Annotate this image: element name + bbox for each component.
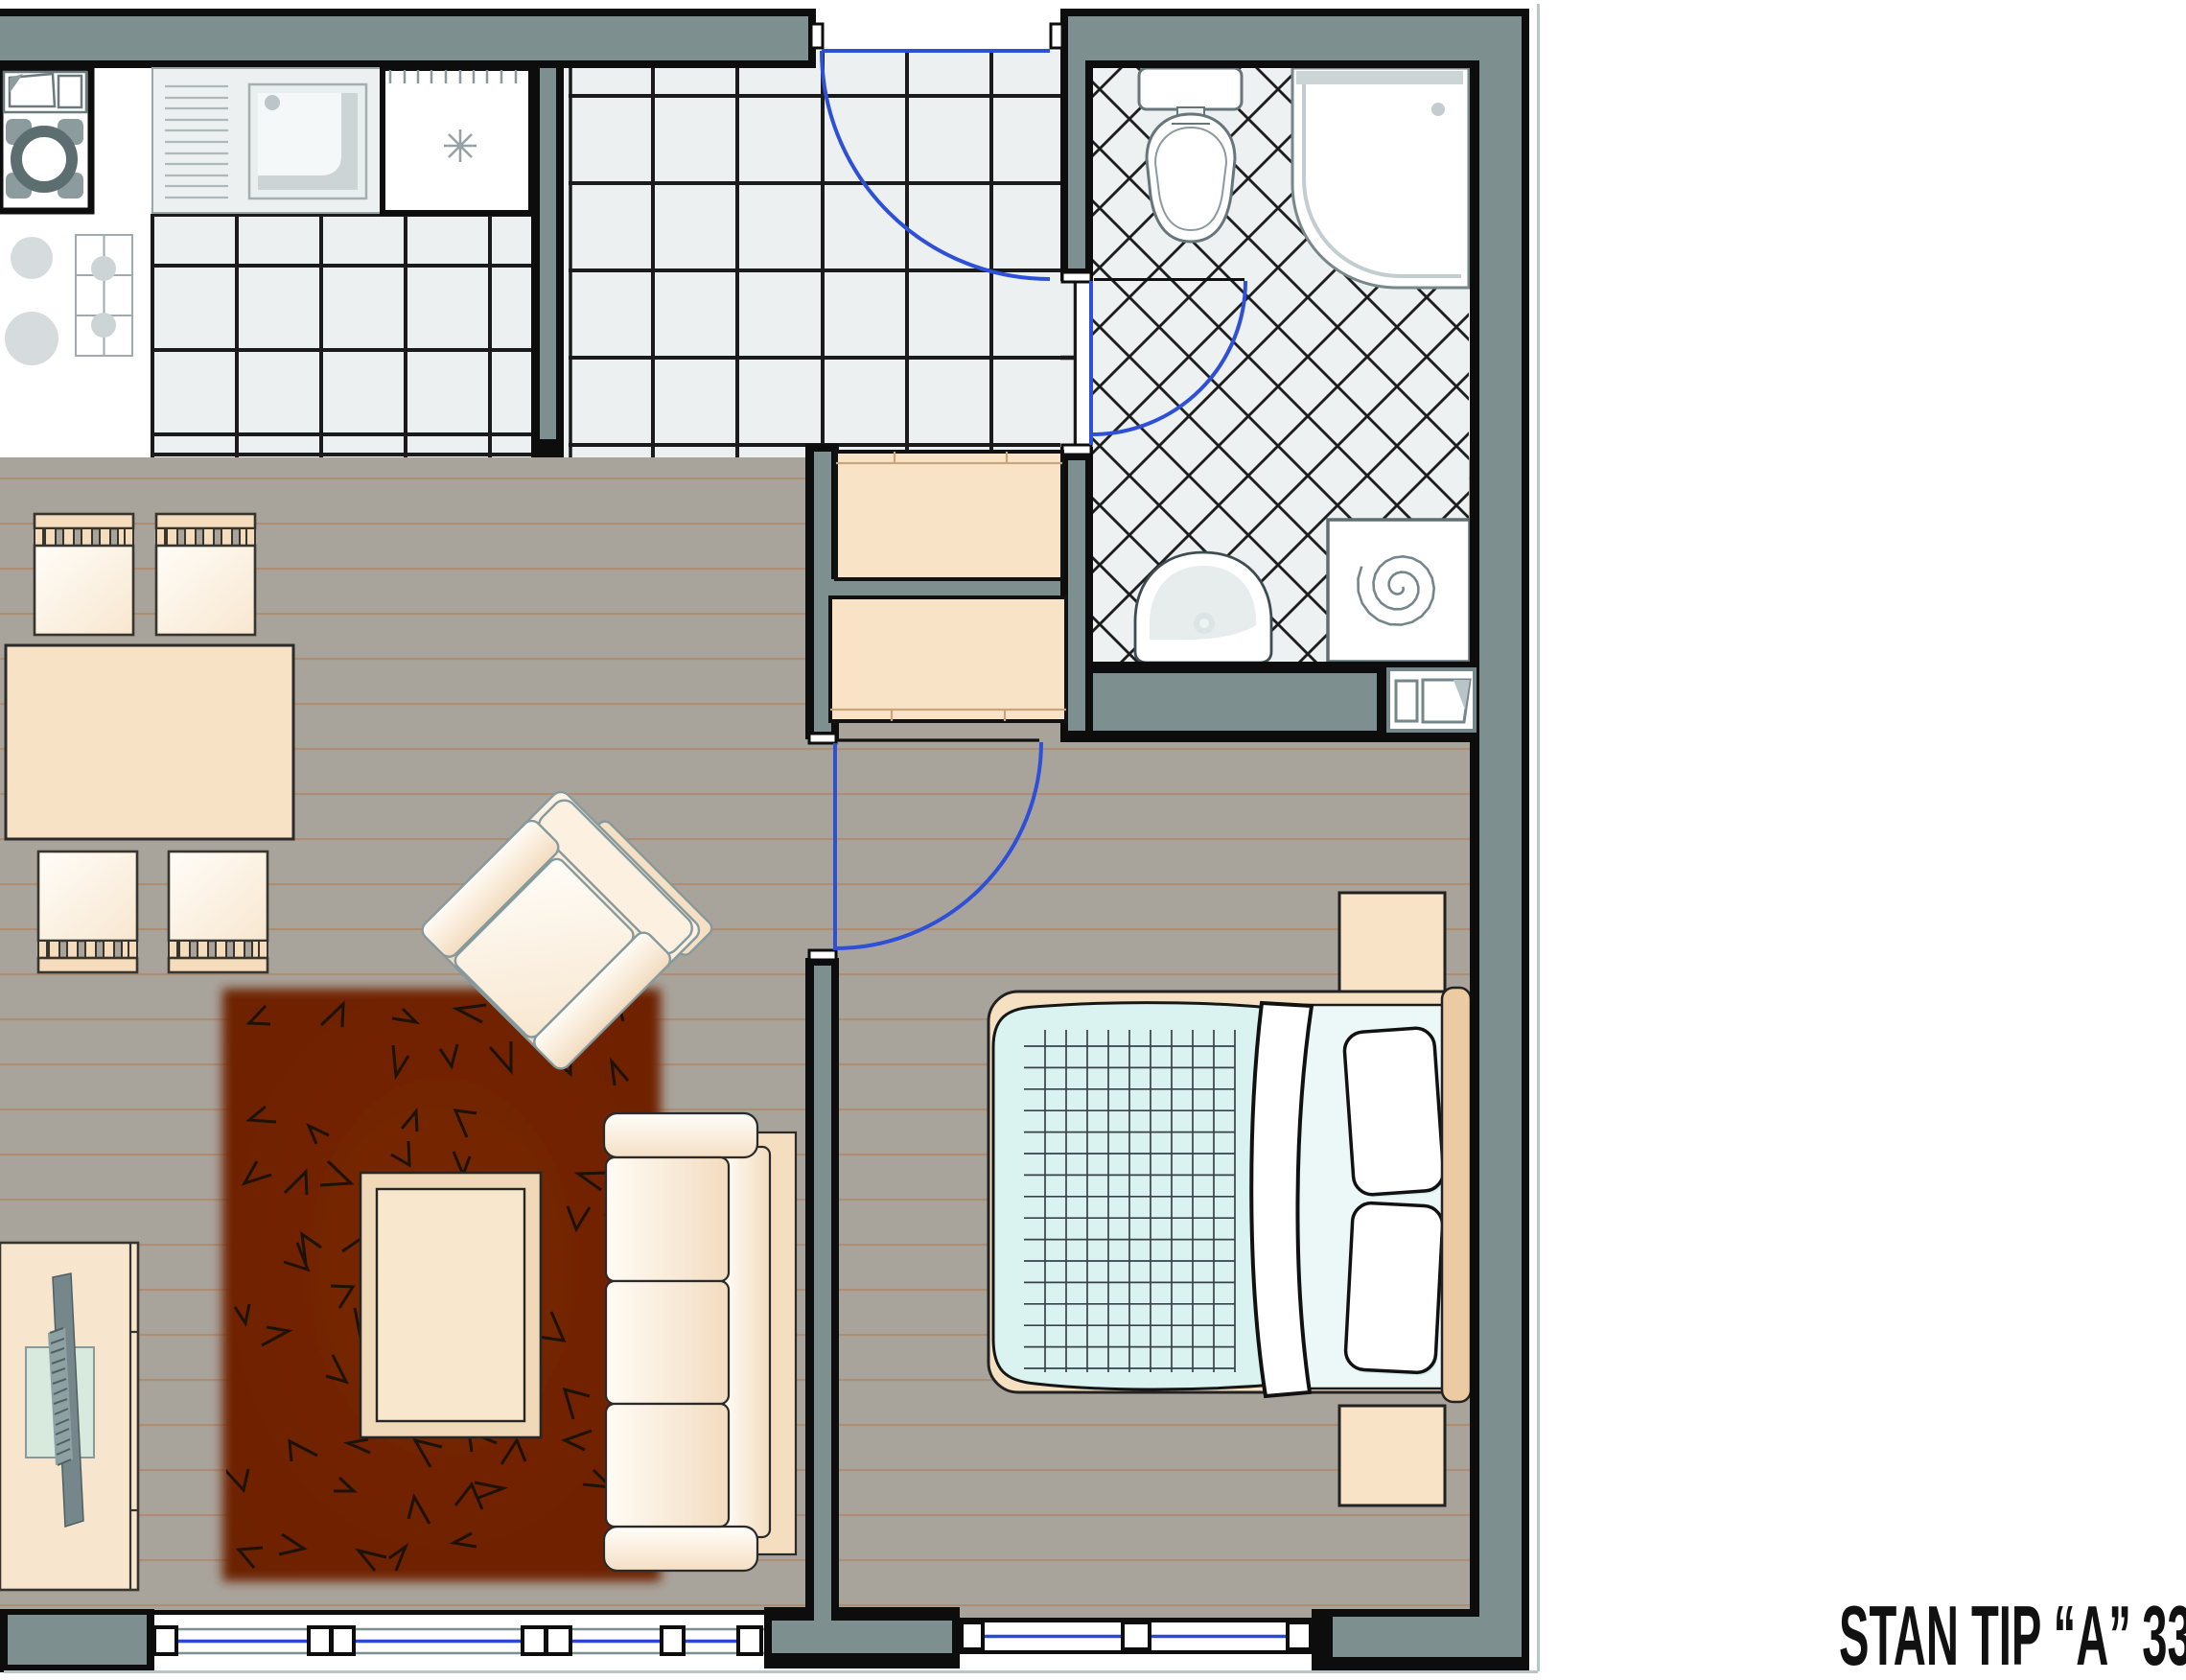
svg-text:33: 33 [2142,1588,2186,1680]
svg-text:STAN TIP “A”: STAN TIP “A” [1839,1588,2131,1680]
